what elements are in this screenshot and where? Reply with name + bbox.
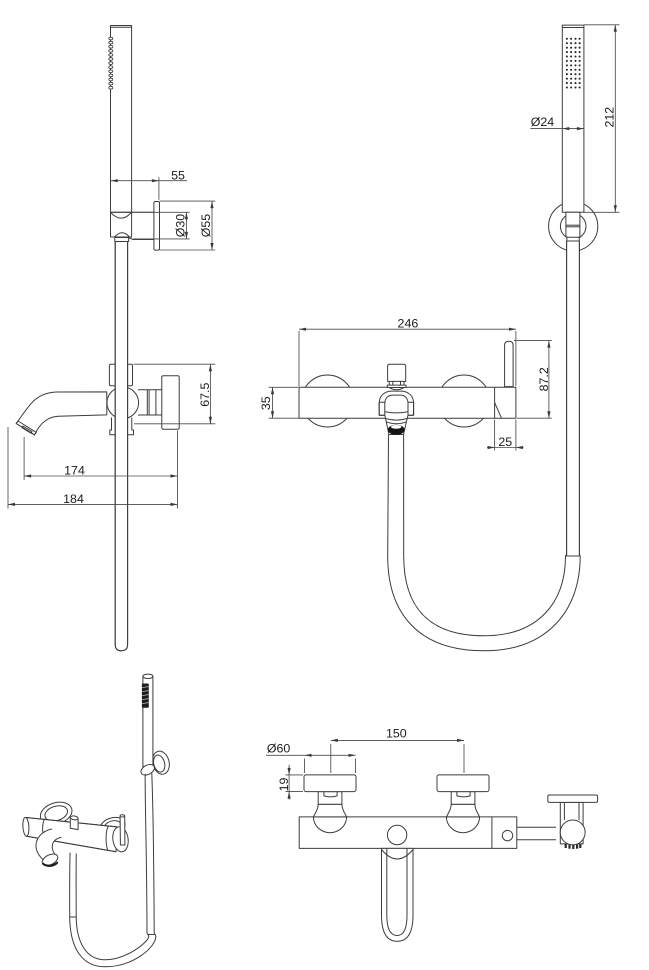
svg-text:Ø24: Ø24 (531, 115, 555, 129)
svg-text:35: 35 (259, 396, 273, 410)
svg-text:67.5: 67.5 (198, 383, 212, 407)
svg-text:19: 19 (277, 778, 291, 792)
svg-text:212: 212 (603, 107, 617, 128)
svg-text:Ø55: Ø55 (199, 214, 213, 238)
svg-text:25: 25 (498, 435, 512, 449)
svg-text:Ø60: Ø60 (267, 742, 291, 756)
svg-text:55: 55 (171, 168, 185, 182)
svg-text:Ø30: Ø30 (173, 214, 187, 238)
svg-text:150: 150 (386, 727, 407, 741)
svg-text:174: 174 (64, 464, 85, 478)
svg-text:184: 184 (63, 492, 84, 506)
svg-text:87.2: 87.2 (537, 367, 551, 391)
svg-text:246: 246 (398, 316, 419, 330)
